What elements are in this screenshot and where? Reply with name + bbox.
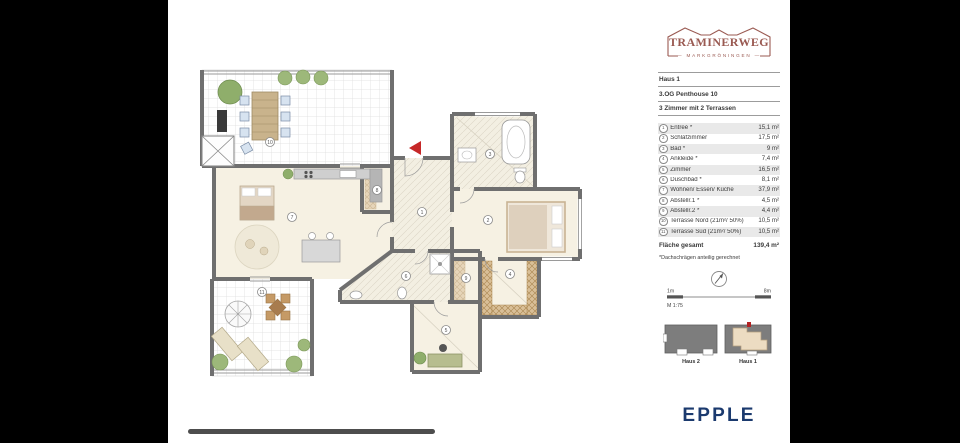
room-area: 37,9 m² — [758, 187, 779, 193]
svg-text:7: 7 — [291, 215, 294, 221]
washbasin — [458, 148, 476, 162]
info-panel: TRAMINERWEG MARKGRÖNINGEN Haus 1 3.OG Pe… — [658, 22, 780, 427]
svg-text:9: 9 — [465, 276, 468, 282]
room-label: Terrasse Süd (21m²/ 50%) — [670, 229, 758, 235]
kitchen-island — [302, 240, 340, 262]
room-label: Entreé * — [670, 125, 758, 131]
entrance-arrow-icon — [409, 141, 421, 155]
layout-label: 3 Zimmer mit 2 Terrassen — [658, 102, 780, 115]
legend-row: 1Entreé *15,1 m² — [658, 123, 780, 133]
room-number-badge: 5 — [659, 166, 668, 175]
room-area: 9 m² — [767, 146, 779, 152]
room-label: Abstellr.1 * — [670, 198, 762, 204]
room-number-badge: 3 — [659, 145, 668, 154]
legend-row: 4Ankleide *7,4 m² — [658, 154, 780, 164]
total-label: Fläche gesamt — [659, 242, 753, 249]
viewer-content: 1234567891011 TRAMINERWEG MARKGRÖNINGEN … — [168, 0, 790, 443]
legend-row: 8Abstellr.1 *4,5 m² — [658, 196, 780, 206]
footnote: *Dachschrägen anteilig gerechnet — [658, 255, 780, 261]
site-key-plan: Haus 2 Haus 1 — [658, 320, 780, 371]
legend-row: 5Zimmer16,5 m² — [658, 165, 780, 175]
room-number-badge: 2 — [659, 134, 668, 143]
svg-text:6: 6 — [405, 274, 408, 280]
plant — [414, 352, 426, 364]
room-area: 10,5 m² — [758, 218, 779, 224]
room-number-badge: 6 — [659, 176, 668, 185]
room-number-badge: 7 — [659, 186, 668, 195]
keyplan-haus2-label: Haus 2 — [682, 359, 700, 365]
room-area: 4,4 m² — [762, 208, 779, 214]
home-indicator-bar[interactable] — [188, 429, 435, 434]
legend-row: 3Bad *9 m² — [658, 144, 780, 154]
room-label: Wohnen/ Essen/ Küche — [670, 187, 758, 193]
svg-text:8: 8 — [376, 188, 379, 194]
logo-title: TRAMINERWEG — [658, 22, 780, 50]
room-label: Abstellr.2 * — [670, 208, 762, 214]
house-label: Haus 1 — [658, 73, 780, 86]
keyplan-unit-marker — [747, 322, 751, 327]
svg-text:5: 5 — [445, 328, 448, 334]
room-area: 17,5 m² — [758, 135, 779, 141]
bathtub — [502, 120, 530, 164]
plant — [298, 339, 310, 351]
washbasin — [350, 291, 362, 299]
room-area: 10,5 m² — [758, 229, 779, 235]
room-label: Bad * — [670, 146, 767, 152]
svg-text:3: 3 — [489, 152, 492, 158]
room-number-badge: 9 — [659, 207, 668, 216]
room-label: Schlafzimmer — [670, 135, 758, 141]
room-number-badge: 11 — [659, 228, 668, 237]
legend-row: 9Abstellr.2 *4,4 m² — [658, 206, 780, 216]
scale-ratio-label: M 1:75 — [667, 303, 683, 309]
keyplan-haus1-label: Haus 1 — [739, 359, 757, 365]
round-rug — [235, 225, 279, 269]
room-area: 16,5 m² — [758, 167, 779, 173]
plant — [296, 70, 310, 84]
stool — [327, 233, 334, 240]
compass-icon — [712, 272, 727, 287]
svg-text:11: 11 — [259, 290, 264, 296]
legend-row: 7Wohnen/ Essen/ Küche37,9 m² — [658, 185, 780, 195]
toilet — [398, 287, 407, 299]
sink — [340, 171, 356, 178]
total-area-row: Fläche gesamt 139,4 m² — [658, 242, 780, 249]
room-area: 4,5 m² — [762, 198, 779, 204]
scale-left-label: 1m — [667, 289, 674, 295]
epple-brand-logo: EPPLE — [658, 405, 780, 427]
desk — [428, 354, 462, 367]
legend-row: 11Terrasse Süd (21m²/ 50%)10,5 m² — [658, 227, 780, 237]
plant — [212, 354, 228, 370]
desk-chair — [439, 344, 447, 352]
logo-subtitle: MARKGRÖNINGEN — [658, 53, 780, 58]
plant — [314, 71, 328, 85]
room-number-badge: 4 — [659, 155, 668, 164]
room-number-badge: 8 — [659, 197, 668, 206]
entree-floor — [392, 158, 452, 251]
project-logo: TRAMINERWEG MARKGRÖNINGEN — [658, 22, 780, 72]
room-area: 8,1 m² — [762, 177, 779, 183]
room-label: Zimmer — [670, 167, 758, 173]
legend-list: 1Entreé *15,1 m²2Schlafzimmer17,5 m²3Bad… — [658, 123, 780, 237]
legend-row: 10Terrasse Nord (21m²/ 50%)10,5 m² — [658, 217, 780, 227]
legend-row: 2Schlafzimmer17,5 m² — [658, 134, 780, 144]
svg-text:2: 2 — [487, 218, 490, 224]
room-area: 7,4 m² — [762, 156, 779, 162]
floor-unit-label: 3.OG Penthouse 10 — [658, 87, 780, 100]
plant — [286, 356, 302, 372]
svg-text:4: 4 — [509, 272, 512, 278]
total-area-value: 139,4 m² — [753, 242, 779, 249]
room-label: Duschbad * — [670, 177, 762, 183]
stool — [309, 233, 316, 240]
compass-and-scale: 1m 8m M 1:75 — [658, 270, 780, 315]
divider — [658, 115, 780, 116]
room-area: 15,1 m² — [758, 125, 779, 131]
svg-text:10: 10 — [267, 140, 273, 146]
plant — [278, 71, 292, 85]
scale-right-label: 8m — [764, 289, 771, 295]
floor-plan: 1234567891011 — [190, 62, 630, 394]
room-number-badge: 10 — [659, 217, 668, 226]
svg-text:1: 1 — [421, 210, 424, 216]
plant — [218, 80, 242, 104]
room-label: Terrasse Nord (21m²/ 50%) — [670, 218, 758, 224]
legend-row: 6Duschbad *8,1 m² — [658, 175, 780, 185]
grill — [217, 110, 227, 132]
scale-bar: 1m 8m M 1:75 — [667, 289, 771, 310]
room-label: Ankleide * — [670, 156, 762, 162]
plant — [283, 169, 293, 179]
bedroom-furniture — [507, 202, 565, 252]
room-number-badge: 1 — [659, 124, 668, 133]
